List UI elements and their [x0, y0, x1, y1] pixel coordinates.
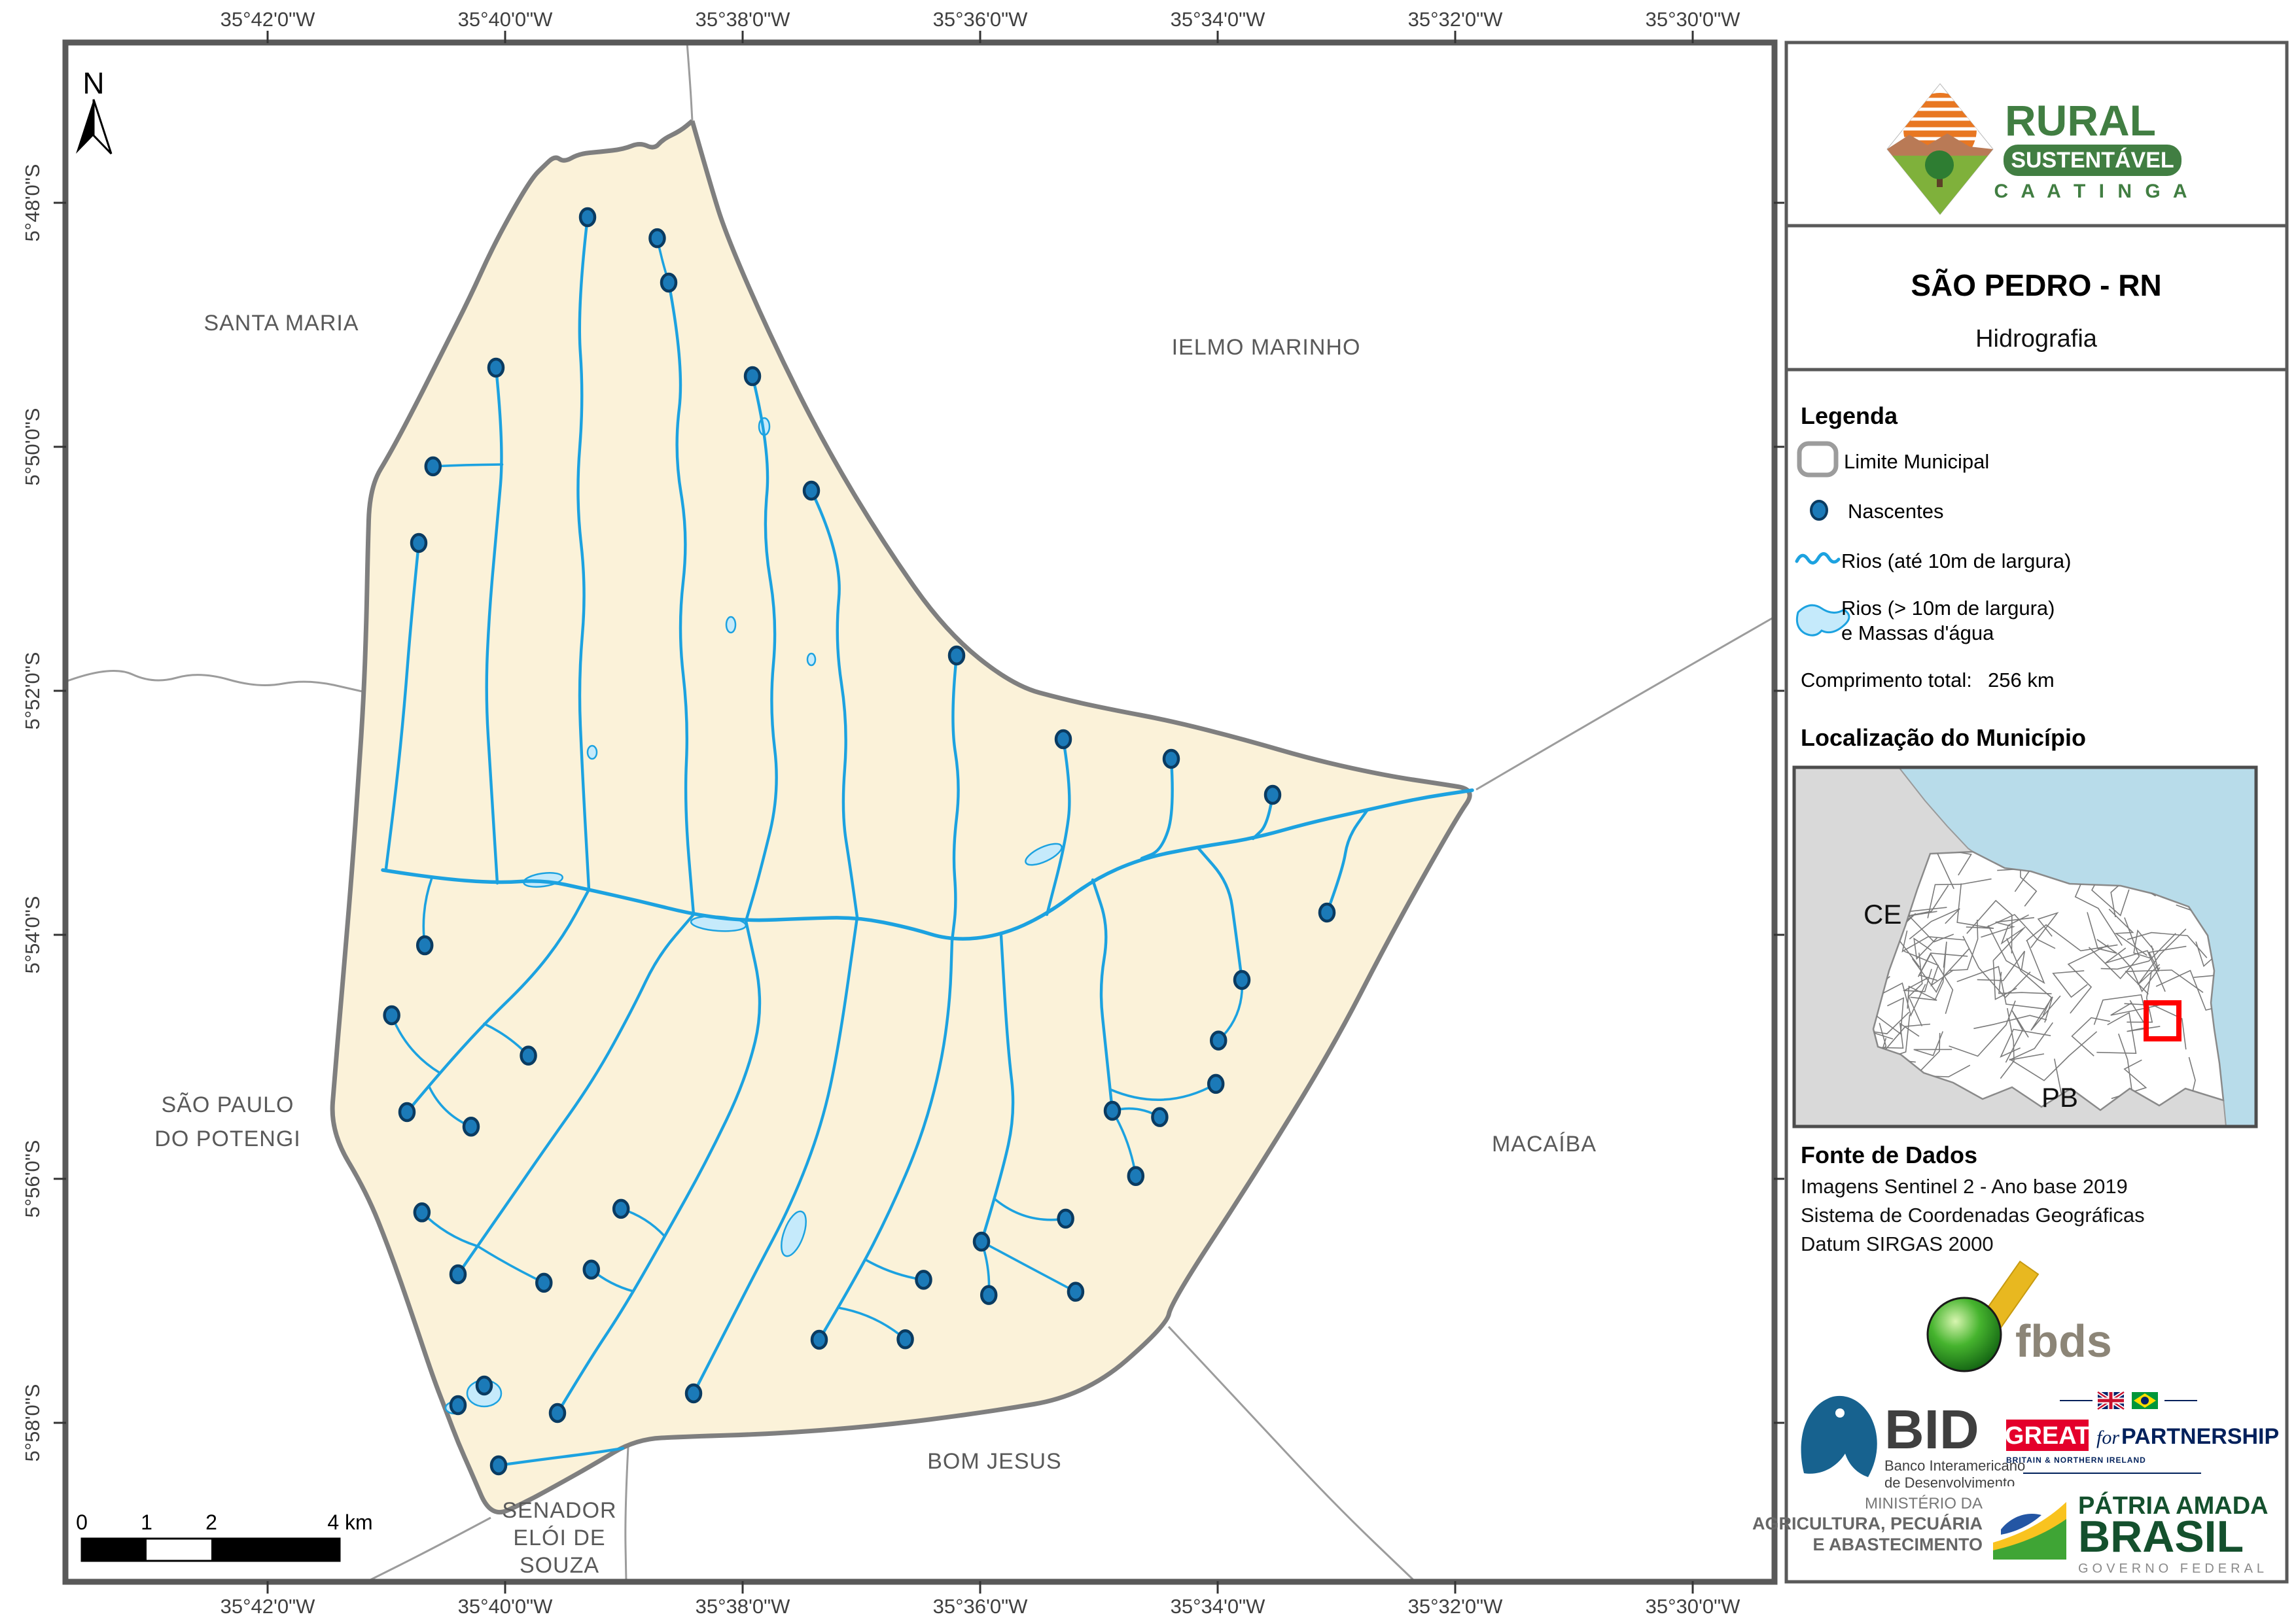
legend-massas-label-1: Rios (> 10m de largura) — [1841, 597, 2055, 620]
nascente-dot — [662, 274, 676, 291]
label-santa-maria: SANTA MARIA — [203, 311, 359, 336]
grid-label-bottom: 35°34'0"W — [1171, 1595, 1266, 1618]
source-line-3: Datum SIRGAS 2000 — [1801, 1232, 1994, 1255]
grid-label-left: 5°48'0"S — [21, 164, 44, 242]
nascente-dot — [400, 1104, 414, 1121]
nascente-dot — [584, 1261, 599, 1278]
legend-nascentes-swatch — [1811, 501, 1827, 519]
nascente-dot — [1152, 1109, 1167, 1126]
nascente-dot — [898, 1331, 913, 1348]
bid-acronym: BID — [1884, 1399, 1979, 1460]
legend-total-label: Comprimento total: — [1801, 669, 1972, 691]
label-sao-paulo: SÃO PAULO — [162, 1092, 294, 1117]
nascente-dot — [745, 368, 760, 385]
legend-heading: Legenda — [1801, 402, 1898, 429]
nascente-dot — [1320, 904, 1334, 921]
nascente-dot — [580, 209, 595, 226]
nascente-dot — [417, 937, 432, 954]
grid-label-bottom: 35°40'0"W — [458, 1595, 554, 1618]
grid-label-bottom: 35°36'0"W — [933, 1595, 1029, 1618]
brasil-line-2: BRASIL — [2078, 1512, 2244, 1562]
nascente-dot — [981, 1287, 996, 1304]
nascente-dot — [537, 1274, 551, 1291]
scale-bar-label: 4 km — [327, 1510, 372, 1534]
scale-bar-seg2 — [211, 1539, 340, 1561]
grid-label-left: 5°58'0"S — [21, 1384, 44, 1462]
brand-title: RURAL — [2005, 96, 2156, 145]
scale-bar-label: 2 — [205, 1510, 217, 1534]
bid-icon-dot — [1835, 1408, 1845, 1418]
grid-label-bottom: 35°38'0"W — [696, 1595, 791, 1618]
water-body — [588, 746, 597, 759]
nascente-dot — [385, 1007, 399, 1024]
inset-pb-label: PB — [2041, 1082, 2078, 1113]
brasil-line-3: GOVERNO FEDERAL — [2078, 1562, 2268, 1576]
grid-label-top: 35°36'0"W — [933, 8, 1029, 31]
nascente-dot — [464, 1118, 478, 1135]
nascente-dot — [550, 1405, 565, 1422]
nascente-dot — [451, 1397, 465, 1414]
brasil-flag-logo-icon — [1993, 1486, 2066, 1560]
nascente-dot — [917, 1271, 931, 1288]
grid-label-bottom: 35°42'0"W — [221, 1595, 316, 1618]
location-heading: Localização do Município — [1801, 724, 2086, 751]
label-senador-2: ELÓI DE — [513, 1526, 605, 1550]
fbds-sphere-icon — [1928, 1298, 2001, 1371]
for-word: for — [2096, 1427, 2119, 1448]
nascente-dot — [426, 458, 440, 475]
grid-label-top: 35°32'0"W — [1408, 8, 1504, 31]
nascente-dot — [412, 534, 426, 551]
great-word: GREAT — [2005, 1422, 2090, 1450]
inset-ce-label: CE — [1863, 899, 1901, 930]
main-map: SANTA MARIA IELMO MARINHO SÃO PAULO DO P… — [21, 8, 1784, 1618]
nascente-dot — [1059, 1210, 1073, 1227]
nascente-dot — [451, 1266, 465, 1283]
label-ielmo-marinho: IELMO MARINHO — [1172, 335, 1361, 360]
nascente-dot — [974, 1233, 989, 1250]
fbds-wordmark: fbds — [2015, 1316, 2112, 1367]
nascente-dot — [1164, 750, 1178, 767]
uk-flag-icon — [2098, 1392, 2124, 1409]
nascente-dot — [1129, 1168, 1143, 1185]
side-panel: RURAL SUSTENTÁVEL C A A T I N G A SÃO PE… — [1752, 43, 2287, 1582]
ministry-line-1: MINISTÉRIO DA — [1865, 1495, 1983, 1512]
nascente-dot — [804, 482, 819, 499]
map-subtitle: Hidrografia — [1975, 325, 2098, 353]
nascente-dot — [415, 1204, 429, 1221]
legend-limite-swatch — [1799, 444, 1836, 475]
legend-limite-label: Limite Municipal — [1844, 450, 1989, 473]
grid-label-left: 5°54'0"S — [21, 896, 44, 974]
grid-label-left: 5°56'0"S — [21, 1140, 44, 1218]
grid-label-top: 35°38'0"W — [696, 8, 791, 31]
label-do-potengi: DO POTENGI — [154, 1126, 300, 1151]
map-sheet: SANTA MARIA IELMO MARINHO SÃO PAULO DO P… — [0, 0, 2296, 1623]
label-senador-3: SOUZA — [520, 1553, 599, 1578]
nascente-dot — [1211, 1032, 1226, 1049]
water-body — [807, 654, 815, 665]
brand-tagline: C A A T I N G A — [1994, 181, 2191, 202]
nascente-dot — [521, 1047, 536, 1064]
label-bom-jesus: BOM JESUS — [927, 1449, 1061, 1474]
brand-subtitle: SUSTENTÁVEL — [2011, 148, 2174, 173]
grid-label-top: 35°30'0"W — [1646, 8, 1741, 31]
partnership-word: PARTNERSHIP — [2121, 1424, 2279, 1449]
ministry-line-2: AGRICULTURA, PECUÁRIA — [1752, 1513, 1983, 1533]
source-line-2: Sistema de Coordenadas Geográficas — [1801, 1204, 2145, 1227]
grid-label-bottom: 35°32'0"W — [1408, 1595, 1504, 1618]
scale-bar-label: 0 — [76, 1510, 88, 1534]
nascente-dot — [1209, 1075, 1223, 1092]
nascente-dot — [489, 359, 503, 376]
rural-sustentavel-logo: RURAL SUSTENTÁVEL C A A T I N G A — [1887, 84, 2191, 216]
water-body — [726, 617, 735, 633]
location-inset: Localização do Município CE PB — [1794, 724, 2281, 1139]
nascente-dot — [949, 647, 964, 664]
legend-nascentes-label: Nascentes — [1848, 500, 1943, 523]
bid-sub-1: Banco Interamericano — [1884, 1457, 2025, 1474]
scale-bar-label: 1 — [141, 1510, 152, 1534]
nascente-dot — [1105, 1102, 1120, 1119]
map-title: SÃO PEDRO - RN — [1911, 268, 2161, 302]
legend-total-value: 256 km — [1988, 669, 2055, 691]
label-senador-1: SENADOR — [502, 1498, 616, 1523]
grid-label-bottom: 35°30'0"W — [1646, 1595, 1741, 1618]
nascente-dot — [1069, 1283, 1083, 1300]
nascente-dot — [812, 1331, 826, 1348]
ministry-line-3: E ABASTECIMENTO — [1812, 1535, 1983, 1554]
great-sub: BRITAIN & NORTHERN IRELAND — [2006, 1456, 2146, 1465]
label-macaiba: MACAÍBA — [1492, 1132, 1597, 1157]
legend-massas-label-2: e Massas d'água — [1841, 621, 1994, 644]
grid-label-top: 35°42'0"W — [221, 8, 316, 31]
nascente-dot — [686, 1385, 701, 1402]
source-line-1: Imagens Sentinel 2 - Ano base 2019 — [1801, 1175, 2128, 1198]
nascente-dot — [491, 1457, 506, 1474]
legend-rios-label: Rios (até 10m de largura) — [1841, 550, 2072, 572]
scale-bar-seg1 — [82, 1539, 147, 1561]
nascente-dot — [1056, 731, 1070, 748]
grid-label-top: 35°34'0"W — [1171, 8, 1266, 31]
grid-label-top: 35°40'0"W — [458, 8, 554, 31]
north-arrow-label: N — [82, 66, 104, 100]
nascente-dot — [650, 230, 664, 247]
nascente-dot — [1265, 786, 1280, 803]
brazil-flag-icon — [2132, 1392, 2158, 1409]
grid-label-left: 5°52'0"S — [21, 652, 44, 730]
source-heading: Fonte de Dados — [1801, 1142, 1977, 1168]
grid-label-left: 5°50'0"S — [21, 408, 44, 486]
nascente-dot — [477, 1377, 491, 1394]
nascente-dot — [614, 1200, 628, 1217]
nascente-dot — [1235, 971, 1249, 988]
